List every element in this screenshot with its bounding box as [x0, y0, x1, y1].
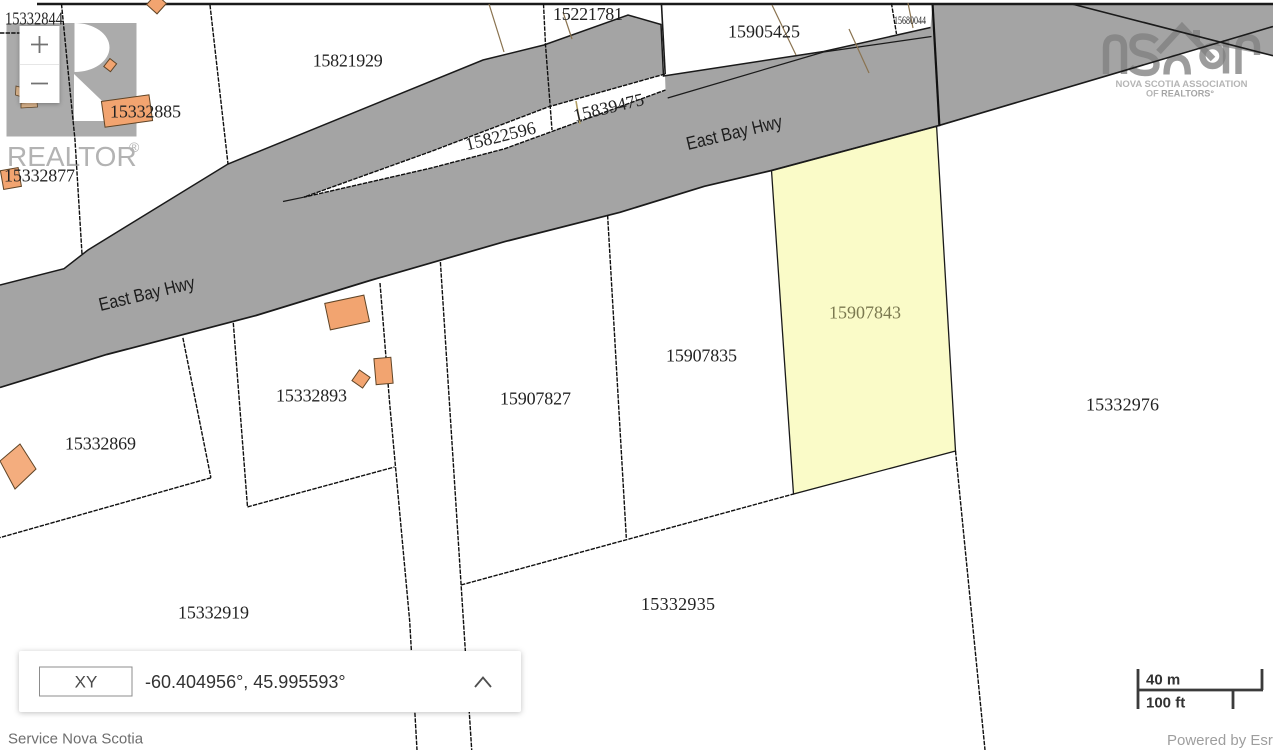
- svg-text:15332869: 15332869: [65, 434, 136, 454]
- svg-text:15332919: 15332919: [178, 603, 249, 623]
- svg-text:15680044: 15680044: [894, 15, 926, 27]
- svg-text:-60.404956°, 45.995593°: -60.404956°, 45.995593°: [145, 672, 346, 692]
- svg-text:®: ®: [129, 139, 140, 155]
- svg-text:15332976: 15332976: [1086, 395, 1159, 415]
- svg-text:15821929: 15821929: [313, 51, 383, 71]
- svg-text:15332877: 15332877: [4, 166, 75, 186]
- svg-text:15907843: 15907843: [829, 303, 901, 323]
- svg-text:15907835: 15907835: [666, 346, 737, 366]
- svg-text:15332885: 15332885: [110, 102, 181, 122]
- svg-text:Powered by Esri: Powered by Esri: [1167, 732, 1273, 749]
- svg-text:NOVA SCOTIA ASSOCIATION: NOVA SCOTIA ASSOCIATION: [1116, 79, 1248, 89]
- svg-text:100 ft: 100 ft: [1146, 695, 1185, 712]
- svg-text:XY: XY: [75, 673, 98, 692]
- svg-text:15332893: 15332893: [276, 386, 347, 406]
- svg-text:15907827: 15907827: [500, 389, 571, 409]
- svg-text:15332935: 15332935: [641, 594, 715, 614]
- svg-text:15332844: 15332844: [5, 9, 63, 29]
- svg-text:15905425: 15905425: [728, 22, 800, 42]
- svg-text:40 m: 40 m: [1146, 672, 1180, 689]
- svg-text:Service Nova Scotia: Service Nova Scotia: [8, 731, 144, 748]
- svg-text:OF REALTORS°: OF REALTORS°: [1146, 89, 1214, 99]
- svg-text:15221781: 15221781: [553, 4, 623, 24]
